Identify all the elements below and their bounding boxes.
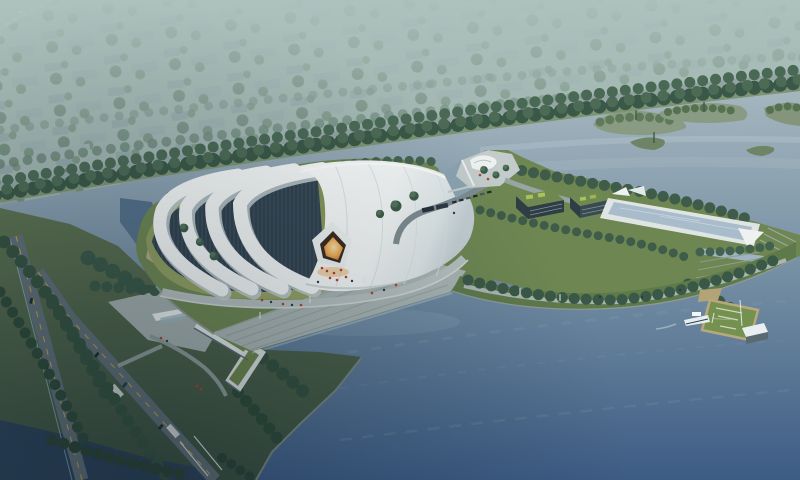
dusk-vignette bbox=[0, 0, 800, 480]
aerial-rendering bbox=[0, 0, 800, 480]
rendering-canvas bbox=[0, 0, 800, 480]
